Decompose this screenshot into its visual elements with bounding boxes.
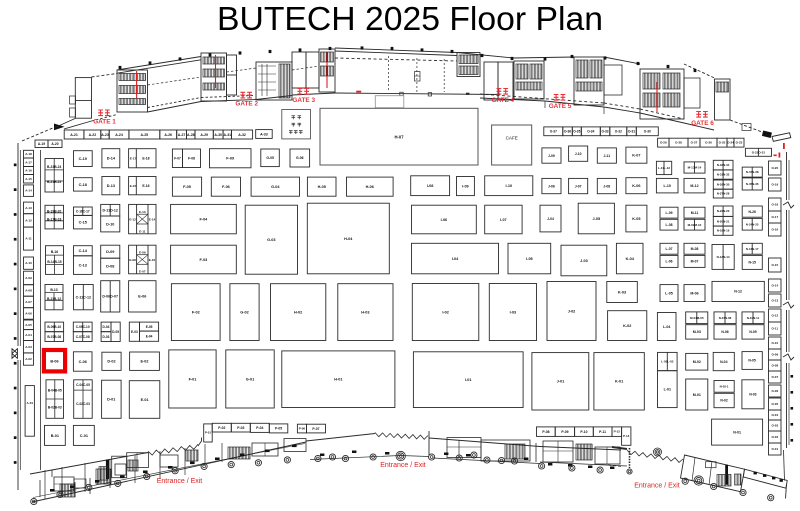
svg-text:O-31: O-31 — [628, 130, 635, 134]
svg-text:B-11B-12: B-11B-12 — [47, 297, 61, 301]
svg-text:C-16C-17: C-16C-17 — [76, 209, 90, 213]
svg-text:GATE 1: GATE 1 — [93, 118, 116, 125]
svg-text:J-11: J-11 — [603, 154, 610, 158]
svg-text:K-01: K-01 — [615, 380, 623, 384]
svg-text:J-03: J-03 — [580, 259, 588, 263]
svg-text:B-06: B-06 — [50, 359, 58, 363]
svg-text:O-30: O-30 — [644, 130, 651, 134]
svg-text:N-05: N-05 — [748, 359, 755, 363]
svg-text:E-17: E-17 — [130, 157, 137, 161]
svg-text:G-04: G-04 — [271, 185, 280, 189]
svg-text:D-03: D-03 — [103, 335, 110, 339]
svg-text:I-06: I-06 — [441, 218, 448, 222]
svg-text:O-34: O-34 — [587, 130, 594, 134]
svg-text:D-04: D-04 — [103, 325, 110, 329]
svg-text:P-04: P-04 — [256, 426, 263, 430]
svg-text:H-03: H-03 — [361, 311, 369, 315]
svg-text:J-01: J-01 — [557, 380, 565, 384]
svg-text:N-31N-32: N-31N-32 — [717, 173, 730, 177]
svg-text:L-01: L-01 — [664, 387, 671, 391]
svg-text:O-33: O-33 — [601, 130, 608, 134]
svg-text:H-05: H-05 — [318, 185, 326, 189]
svg-text:H-02: H-02 — [294, 311, 302, 315]
svg-text:J-04: J-04 — [547, 217, 554, 221]
svg-text:O-04: O-04 — [771, 413, 778, 417]
svg-text:A-04: A-04 — [25, 333, 32, 337]
svg-text:G-05: G-05 — [266, 156, 274, 160]
svg-text:D-02: D-02 — [107, 360, 115, 364]
svg-text:O-15: O-15 — [771, 263, 778, 267]
svg-text:N-13N-14: N-13N-14 — [717, 255, 730, 259]
svg-text:I-08: I-08 — [427, 184, 434, 188]
svg-text:A-24: A-24 — [115, 133, 123, 137]
svg-text:E-13: E-13 — [139, 210, 146, 214]
svg-text:D-13: D-13 — [107, 184, 115, 188]
svg-text:O-11: O-11 — [772, 327, 779, 331]
svg-text:M-04M-05: M-04M-05 — [690, 316, 704, 320]
svg-text:K-07: K-07 — [632, 154, 640, 158]
svg-text:D-05: D-05 — [112, 330, 119, 334]
svg-text:A-23: A-23 — [101, 133, 109, 137]
svg-text:E-18: E-18 — [142, 157, 149, 161]
svg-text:O-25: O-25 — [719, 141, 726, 145]
svg-text:O-02: O-02 — [771, 435, 778, 439]
svg-text:C-14: C-14 — [79, 249, 88, 253]
svg-text:O-19: O-19 — [771, 183, 778, 187]
svg-text:J-07: J-07 — [575, 184, 582, 188]
svg-text:Entrance / Exit: Entrance / Exit — [380, 462, 426, 469]
svg-text:A-26: A-26 — [164, 133, 172, 137]
svg-text:B-09B-10: B-09B-10 — [47, 325, 61, 329]
svg-text:O-17: O-17 — [771, 215, 778, 219]
svg-text:B-07B-08: B-07B-08 — [47, 335, 61, 339]
svg-text:D-14: D-14 — [107, 157, 116, 161]
svg-text:A-05: A-05 — [25, 323, 32, 327]
svg-text:P-06: P-06 — [299, 427, 306, 431]
svg-text:M-13M-14: M-13M-14 — [688, 166, 702, 170]
svg-text:M-07: M-07 — [691, 260, 699, 264]
svg-text:I-01: I-01 — [465, 378, 472, 382]
svg-text:K-02: K-02 — [623, 324, 631, 328]
svg-text:L-08: L-08 — [666, 223, 673, 227]
svg-text:J-10: J-10 — [575, 152, 582, 156]
svg-text:N-10N-11: N-10N-11 — [747, 316, 760, 320]
svg-text:A-02: A-02 — [25, 357, 32, 361]
svg-text:E-15: E-15 — [130, 184, 137, 188]
svg-text:M-09M-10: M-09M-10 — [688, 223, 702, 227]
svg-text:N-35N-36: N-35N-36 — [746, 182, 759, 186]
svg-text:L-09: L-09 — [666, 211, 673, 215]
svg-text:G-03: G-03 — [267, 238, 275, 242]
svg-text:GATE 6: GATE 6 — [691, 120, 714, 127]
svg-text:M-06: M-06 — [690, 291, 698, 295]
svg-text:A-11: A-11 — [25, 237, 32, 241]
svg-text:A-16: A-16 — [25, 169, 32, 173]
svg-text:A-32: A-32 — [238, 133, 246, 137]
svg-text:A-15: A-15 — [25, 177, 32, 181]
svg-text:E-16: E-16 — [142, 184, 149, 188]
svg-text:E-08: E-08 — [129, 258, 136, 262]
svg-text:J-09: J-09 — [548, 154, 555, 158]
svg-text:O-03: O-03 — [771, 424, 778, 428]
svg-text:O-24: O-24 — [727, 141, 734, 145]
svg-text:D-01: D-01 — [107, 398, 115, 402]
svg-text:I-04: I-04 — [452, 257, 459, 261]
svg-text:P-12: P-12 — [614, 430, 621, 434]
svg-text:O-37: O-37 — [550, 130, 557, 134]
svg-text:O-29: O-29 — [660, 141, 667, 145]
svg-text:N-01: N-01 — [733, 430, 741, 434]
svg-text:B-13: B-13 — [50, 288, 57, 292]
svg-text:E-12: E-12 — [129, 217, 136, 221]
svg-text:L-11L-12: L-11L-12 — [658, 166, 671, 170]
svg-text:B-02B-03: B-02B-03 — [48, 405, 62, 409]
svg-text:O-28: O-28 — [675, 141, 682, 145]
svg-text:A-01: A-01 — [27, 401, 34, 405]
svg-text:P-09: P-09 — [561, 430, 568, 434]
svg-text:N-24N-25: N-24N-25 — [746, 222, 759, 226]
svg-text:H-06: H-06 — [366, 185, 374, 189]
svg-text:F-07: F-07 — [174, 156, 181, 160]
svg-text:A-08: A-08 — [25, 289, 32, 293]
svg-text:F-09: F-09 — [226, 157, 234, 161]
svg-text:J-02: J-02 — [568, 309, 576, 313]
svg-text:A-03: A-03 — [25, 345, 32, 349]
svg-text:L-10: L-10 — [664, 184, 671, 188]
svg-text:B-17B-18: B-17B-18 — [47, 217, 61, 221]
svg-text:C-06: C-06 — [79, 360, 87, 364]
svg-text:O-01: O-01 — [771, 447, 778, 451]
svg-text:B-14B-15: B-14B-15 — [47, 260, 61, 264]
svg-text:L-07: L-07 — [666, 247, 673, 251]
svg-text:B-16: B-16 — [51, 250, 58, 254]
svg-text:O-09: O-09 — [771, 353, 778, 357]
svg-text:GATE 3: GATE 3 — [292, 97, 315, 104]
svg-text:F-08: F-08 — [188, 157, 195, 161]
svg-text:J-05: J-05 — [592, 217, 600, 221]
svg-text:N-18N-19: N-18N-19 — [717, 229, 730, 233]
svg-text:O-23: O-23 — [736, 141, 743, 145]
svg-text:D-08: D-08 — [106, 264, 114, 268]
svg-text:N-29N-30: N-29N-30 — [717, 183, 730, 187]
svg-text:A-07: A-07 — [25, 300, 32, 304]
svg-text:K-05: K-05 — [632, 217, 640, 221]
svg-text:Entrance / Exit: Entrance / Exit — [634, 483, 680, 490]
svg-text:N-02-1: N-02-1 — [720, 384, 729, 388]
svg-text:C-01: C-01 — [80, 434, 88, 438]
svg-text:K-04: K-04 — [626, 257, 635, 261]
svg-text:N-15: N-15 — [749, 261, 756, 265]
svg-text:C-09C-10: C-09C-10 — [76, 325, 90, 329]
svg-text:E-01: E-01 — [141, 398, 149, 402]
svg-text:O-14: O-14 — [771, 284, 778, 288]
svg-text:H-04: H-04 — [344, 237, 353, 241]
svg-text:A-10: A-10 — [25, 261, 32, 265]
svg-text:A-09: A-09 — [25, 276, 32, 280]
svg-text:E-09: E-09 — [139, 251, 146, 255]
svg-text:O-05: O-05 — [771, 402, 778, 406]
svg-text:P-01: P-01 — [205, 431, 211, 435]
svg-text:C-04C-05: C-04C-05 — [76, 383, 90, 387]
svg-text:N-07N-08: N-07N-08 — [719, 316, 732, 320]
svg-text:A-30: A-30 — [214, 133, 222, 137]
svg-text:D-10: D-10 — [106, 222, 114, 226]
svg-text:N-22N-23: N-22N-23 — [717, 209, 730, 213]
svg-text:L-06: L-06 — [666, 260, 673, 264]
svg-text:M-08: M-08 — [691, 247, 699, 251]
svg-text:B-01: B-01 — [51, 434, 59, 438]
svg-text:O-22O-21: O-22O-21 — [752, 150, 766, 154]
svg-text:O-07: O-07 — [771, 375, 778, 379]
svg-text:E-05: E-05 — [146, 325, 153, 329]
svg-text:N-06: N-06 — [721, 330, 728, 334]
svg-text:E-10: E-10 — [149, 258, 156, 262]
svg-text:F-05: F-05 — [183, 185, 191, 189]
svg-text:A-17: A-17 — [25, 160, 32, 164]
svg-text:E-04: E-04 — [146, 334, 153, 338]
svg-text:L-05: L-05 — [665, 291, 672, 295]
svg-text:H-01: H-01 — [334, 378, 342, 382]
svg-text:O-08: O-08 — [771, 364, 778, 368]
svg-text:O-12: O-12 — [771, 314, 778, 318]
svg-text:M-02: M-02 — [693, 360, 701, 364]
svg-text:O-06: O-06 — [771, 389, 778, 393]
svg-text:E-03: E-03 — [131, 330, 138, 334]
svg-text:E-06: E-06 — [138, 295, 146, 299]
svg-text:P-02: P-02 — [218, 426, 225, 430]
svg-text:P-08: P-08 — [542, 430, 549, 434]
svg-text:B-04B-05: B-04B-05 — [48, 388, 62, 392]
svg-text:P-11: P-11 — [599, 430, 606, 434]
svg-text:N-26: N-26 — [749, 210, 756, 214]
svg-text:I-05: I-05 — [526, 257, 533, 261]
svg-text:Entrance / Exit: Entrance / Exit — [157, 478, 203, 485]
svg-text:M-01: M-01 — [693, 393, 701, 397]
svg-text:C-18: C-18 — [79, 183, 87, 187]
svg-text:N-09: N-09 — [749, 330, 756, 334]
svg-text:G-02: G-02 — [240, 311, 248, 315]
svg-text:E-11: E-11 — [139, 229, 146, 233]
svg-text:A-29: A-29 — [200, 133, 208, 137]
svg-text:C-02C-03: C-02C-03 — [76, 402, 90, 406]
svg-text:E-02: E-02 — [140, 360, 148, 364]
svg-text:O-18: O-18 — [771, 203, 778, 207]
svg-text:C-13: C-13 — [79, 264, 87, 268]
svg-text:P-10: P-10 — [580, 430, 587, 434]
svg-text:A-18: A-18 — [25, 152, 32, 156]
svg-text:C-19: C-19 — [79, 157, 87, 161]
svg-text:O-26: O-26 — [705, 141, 712, 145]
svg-text:M-03: M-03 — [693, 330, 701, 334]
svg-text:F-03: F-03 — [199, 258, 207, 262]
svg-text:D-06D-07: D-06D-07 — [102, 295, 118, 299]
svg-text:CAFE: CAFE — [506, 136, 518, 141]
svg-text:F-04: F-04 — [199, 218, 208, 222]
svg-text:P-03: P-03 — [237, 426, 244, 430]
svg-text:C-07C-08: C-07C-08 — [76, 335, 90, 339]
svg-text:I-03: I-03 — [510, 310, 517, 314]
svg-text:I-02: I-02 — [442, 310, 449, 314]
svg-text:F-02: F-02 — [192, 311, 200, 315]
svg-text:N-33N-34: N-33N-34 — [717, 163, 730, 167]
svg-text:N-20N-21: N-20N-21 — [717, 219, 730, 223]
svg-text:N-16N-17: N-16N-17 — [746, 247, 759, 251]
svg-text:O-35: O-35 — [573, 130, 580, 134]
svg-text:O-16: O-16 — [771, 228, 778, 232]
svg-text:A-27: A-27 — [178, 133, 186, 137]
svg-text:C-15: C-15 — [79, 221, 87, 225]
svg-text:J-06: J-06 — [548, 184, 555, 188]
svg-text:A-14: A-14 — [25, 189, 32, 193]
svg-text:N-27N-28: N-27N-28 — [717, 192, 730, 196]
svg-text:J-08: J-08 — [603, 184, 610, 188]
svg-text:D-11D-12: D-11D-12 — [103, 209, 118, 213]
svg-text:N-04: N-04 — [720, 360, 727, 364]
svg-text:O-36: O-36 — [564, 130, 571, 134]
svg-text:I-09: I-09 — [462, 184, 469, 188]
svg-text:B-21B-22: B-21B-22 — [47, 180, 61, 184]
svg-text:H-07: H-07 — [394, 135, 404, 140]
svg-text:D-09: D-09 — [106, 250, 114, 254]
svg-text:A-33: A-33 — [260, 132, 268, 136]
svg-text:P-13: P-13 — [623, 434, 629, 438]
svg-text:F-06: F-06 — [222, 185, 230, 189]
svg-text:GATE 4: GATE 4 — [491, 97, 514, 104]
svg-text:B-23B-24: B-23B-24 — [47, 165, 61, 169]
svg-text:A-21: A-21 — [70, 133, 78, 137]
svg-text:A-20: A-20 — [51, 142, 58, 146]
svg-text:A-13: A-13 — [25, 206, 32, 210]
svg-text:GATE 2: GATE 2 — [235, 101, 258, 108]
svg-text:B-19B-20: B-19B-20 — [47, 209, 61, 213]
svg-text:A-31: A-31 — [224, 133, 232, 137]
svg-text:N-12: N-12 — [734, 290, 742, 294]
svg-text:O-10: O-10 — [771, 341, 778, 345]
svg-text:O-32: O-32 — [615, 130, 622, 134]
svg-text:F-01: F-01 — [189, 377, 197, 381]
svg-text:K-06: K-06 — [632, 184, 640, 188]
svg-text:E-07: E-07 — [139, 269, 146, 273]
svg-text:N-02: N-02 — [720, 399, 727, 403]
svg-text:BUTECH 2025 Floor Plan: BUTECH 2025 Floor Plan — [217, 0, 603, 37]
svg-text:A-22: A-22 — [89, 133, 97, 137]
svg-text:N-03: N-03 — [749, 393, 756, 397]
svg-text:A-25: A-25 — [141, 133, 149, 137]
svg-text:O-27: O-27 — [691, 141, 698, 145]
svg-text:G-01: G-01 — [246, 377, 254, 381]
svg-text:GATE 5: GATE 5 — [549, 103, 572, 110]
svg-text:G-06: G-06 — [296, 156, 304, 160]
svg-text:E-14: E-14 — [149, 217, 156, 221]
svg-text:O-13: O-13 — [771, 299, 778, 303]
svg-text:A-28: A-28 — [187, 133, 195, 137]
svg-text:L-04: L-04 — [663, 325, 670, 329]
svg-text:A-12: A-12 — [25, 219, 32, 223]
svg-text:A-06: A-06 — [25, 312, 32, 316]
svg-text:M-11: M-11 — [691, 211, 699, 215]
svg-text:L-02L-03: L-02L-03 — [661, 360, 674, 364]
svg-text:P-07: P-07 — [312, 427, 319, 431]
svg-text:O-20: O-20 — [771, 166, 778, 170]
svg-text:K-03: K-03 — [618, 290, 626, 294]
svg-text:M-12: M-12 — [690, 184, 698, 188]
svg-text:I-07: I-07 — [500, 218, 507, 222]
svg-text:P-05: P-05 — [275, 427, 282, 431]
svg-text:C-11C-12: C-11C-12 — [76, 295, 91, 299]
svg-text:A-19: A-19 — [38, 142, 45, 146]
svg-text:N-37N-38: N-37N-38 — [746, 170, 759, 174]
svg-text:I-10: I-10 — [506, 184, 513, 188]
